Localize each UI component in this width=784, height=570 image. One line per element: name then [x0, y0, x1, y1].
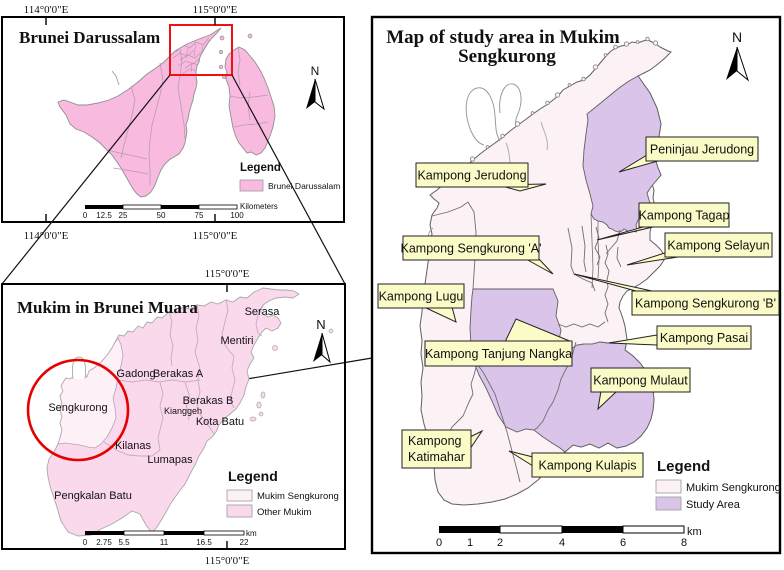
svg-text:Kampong Sengkurong 'B': Kampong Sengkurong 'B': [635, 297, 776, 311]
svg-text:Kilanas: Kilanas: [115, 440, 152, 452]
svg-text:114°0'0"E: 114°0'0"E: [24, 230, 69, 242]
svg-text:8: 8: [681, 537, 687, 549]
svg-text:Kampong Sengkurong 'A': Kampong Sengkurong 'A': [401, 242, 542, 256]
svg-text:Berakas A: Berakas A: [153, 368, 204, 380]
svg-text:115°0'0"E: 115°0'0"E: [193, 4, 238, 16]
svg-text:Legend: Legend: [228, 468, 278, 484]
svg-text:Serasa: Serasa: [245, 306, 281, 318]
svg-text:Kampong Jerudong: Kampong Jerudong: [417, 169, 526, 183]
svg-text:4: 4: [559, 537, 565, 549]
svg-text:25: 25: [119, 211, 128, 220]
svg-text:22: 22: [240, 538, 249, 547]
svg-text:Other Mukim: Other Mukim: [257, 507, 311, 518]
svg-text:Kampong: Kampong: [408, 434, 462, 448]
svg-text:Map of study area in Mukim: Map of study area in Mukim: [386, 27, 620, 48]
svg-text:115°0'0"E: 115°0'0"E: [205, 268, 250, 280]
svg-text:2: 2: [497, 537, 503, 549]
svg-text:6: 6: [620, 537, 626, 549]
svg-text:Kampong Tagap: Kampong Tagap: [639, 209, 730, 223]
svg-text:Sengkurong: Sengkurong: [458, 46, 556, 67]
svg-text:Mukim Sengkurong: Mukim Sengkurong: [686, 482, 781, 494]
svg-text:N: N: [732, 29, 742, 45]
svg-text:Brunei Darussalam: Brunei Darussalam: [268, 181, 340, 191]
svg-text:Study Area: Study Area: [686, 499, 741, 511]
svg-text:0: 0: [83, 211, 88, 220]
svg-text:Kilometers: Kilometers: [240, 202, 278, 211]
svg-text:Pengkalan Batu: Pengkalan Batu: [54, 490, 132, 502]
svg-text:16.5: 16.5: [196, 538, 212, 547]
svg-text:Kota Batu: Kota Batu: [196, 416, 244, 428]
svg-text:Kianggeh: Kianggeh: [164, 406, 202, 416]
svg-text:0: 0: [83, 538, 88, 547]
svg-text:75: 75: [195, 211, 204, 220]
svg-text:N: N: [316, 317, 325, 332]
svg-text:Kampong Tanjung Nangka: Kampong Tanjung Nangka: [425, 347, 572, 361]
svg-text:1: 1: [467, 537, 473, 549]
svg-text:Kampong Pasai: Kampong Pasai: [660, 331, 748, 345]
svg-text:Brunei Darussalam: Brunei Darussalam: [19, 28, 160, 47]
svg-text:12.5: 12.5: [96, 211, 112, 220]
svg-text:5.5: 5.5: [118, 538, 130, 547]
svg-text:100: 100: [230, 211, 244, 220]
svg-text:Mukim in Brunei Muara: Mukim in Brunei Muara: [17, 298, 198, 317]
svg-text:2.75: 2.75: [96, 538, 112, 547]
svg-text:Kampong Kulapis: Kampong Kulapis: [539, 459, 637, 473]
svg-text:Katimahar: Katimahar: [408, 450, 465, 464]
svg-text:Mentiri: Mentiri: [220, 335, 253, 347]
svg-text:Legend: Legend: [657, 458, 710, 475]
svg-text:N: N: [311, 64, 320, 78]
svg-text:Lumapas: Lumapas: [147, 454, 193, 466]
svg-text:Legend: Legend: [240, 162, 281, 174]
svg-text:Kampong Selayun: Kampong Selayun: [667, 239, 769, 253]
svg-text:km: km: [246, 529, 257, 538]
svg-text:115°0'0"E: 115°0'0"E: [205, 555, 250, 567]
svg-text:km: km: [687, 526, 702, 538]
svg-text:11: 11: [160, 538, 169, 547]
svg-text:Mukim Sengkurong: Mukim Sengkurong: [257, 491, 339, 502]
svg-text:Peninjau Jerudong: Peninjau Jerudong: [650, 143, 754, 157]
svg-text:Kampong Lugu: Kampong Lugu: [379, 290, 464, 304]
svg-text:114°0'0"E: 114°0'0"E: [24, 4, 69, 16]
svg-text:Kampong Mulaut: Kampong Mulaut: [593, 374, 688, 388]
svg-text:Sengkurong: Sengkurong: [48, 402, 107, 414]
svg-text:Gadong: Gadong: [116, 368, 155, 380]
svg-text:115°0'0"E: 115°0'0"E: [193, 230, 238, 242]
svg-text:0: 0: [436, 537, 442, 549]
svg-text:50: 50: [157, 211, 166, 220]
